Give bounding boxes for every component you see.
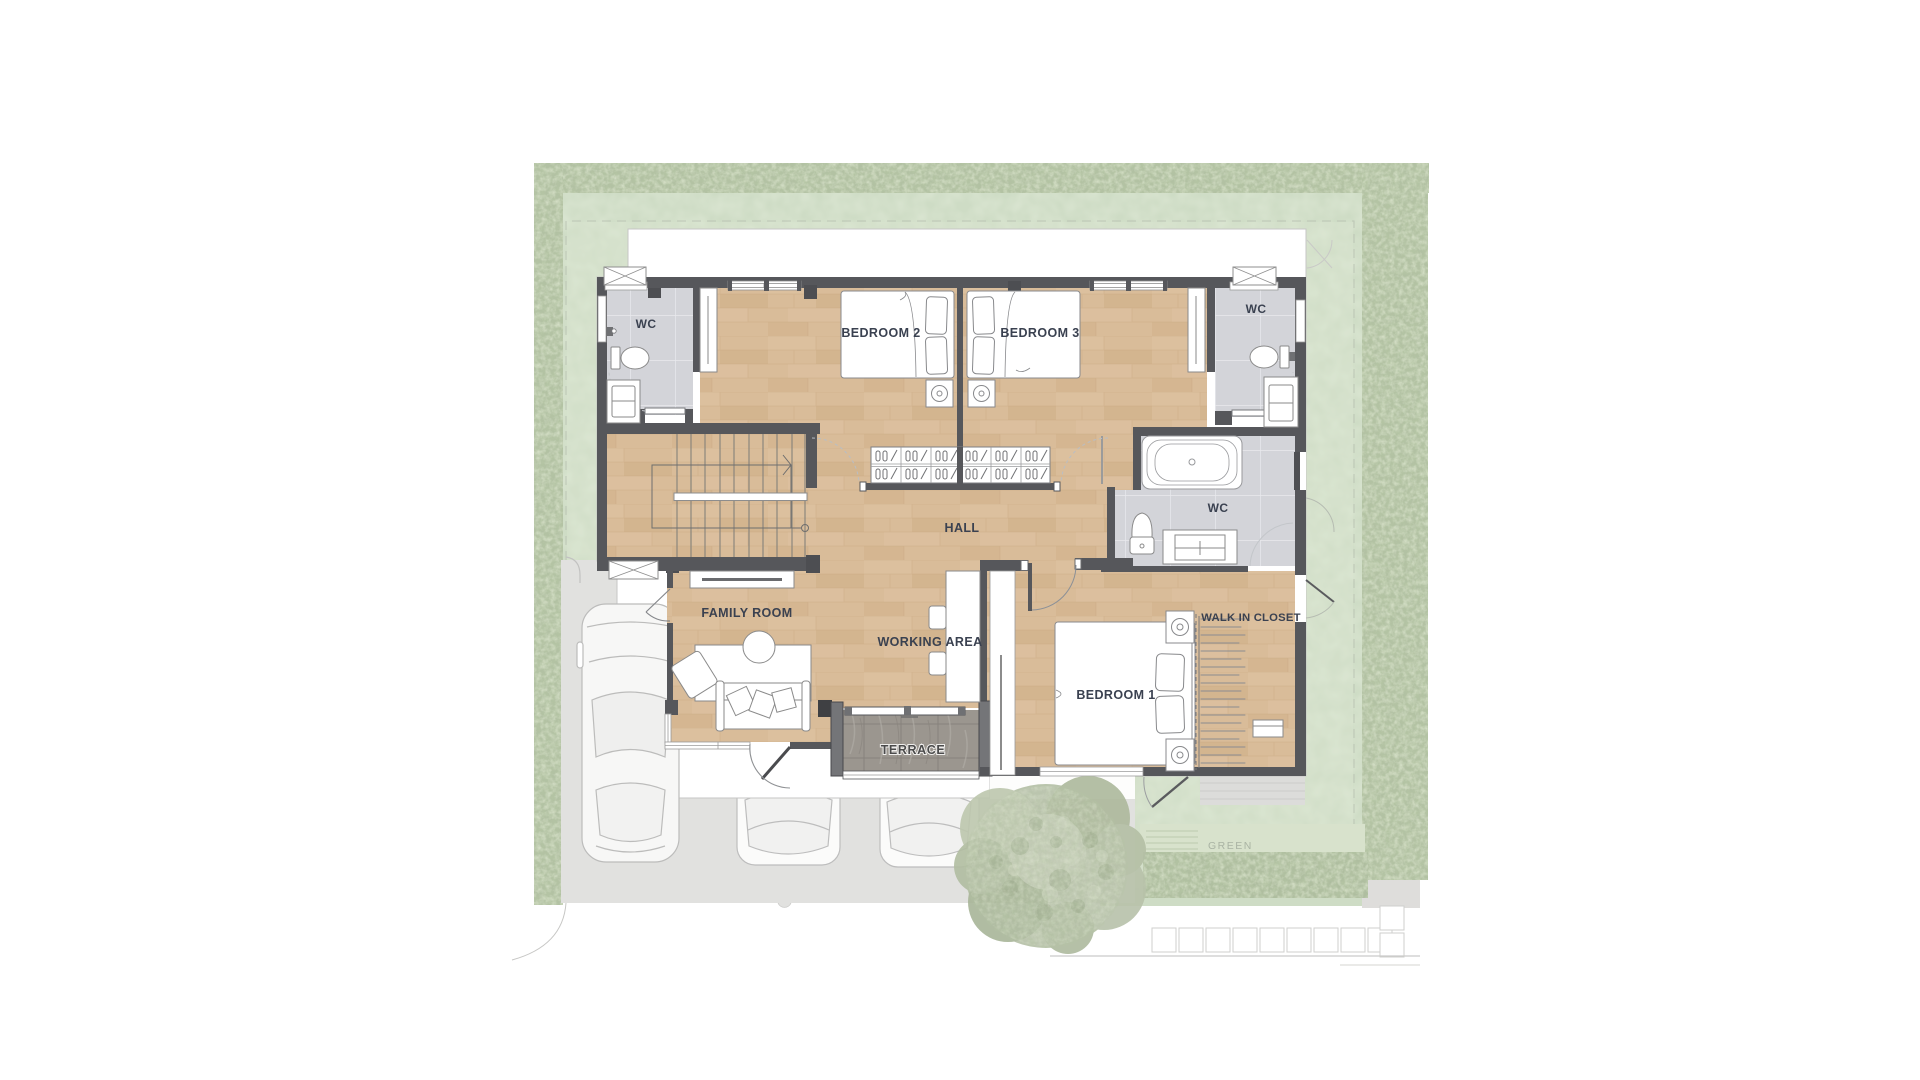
svg-text:WORKING AREA: WORKING AREA [877,635,982,649]
svg-text:HALL: HALL [945,521,980,535]
svg-text:WC: WC [1208,501,1229,515]
svg-text:WALK IN CLOSET: WALK IN CLOSET [1201,612,1300,624]
svg-text:BEDROOM 2: BEDROOM 2 [841,326,920,340]
svg-text:WC: WC [636,317,657,331]
svg-text:FAMILY ROOM: FAMILY ROOM [701,606,792,620]
svg-text:WC: WC [1246,302,1267,316]
svg-text:BEDROOM 3: BEDROOM 3 [1000,326,1079,340]
svg-text:GREEN: GREEN [1208,840,1253,852]
svg-text:BEDROOM 1: BEDROOM 1 [1076,688,1155,702]
svg-text:TERRACE: TERRACE [881,743,946,757]
